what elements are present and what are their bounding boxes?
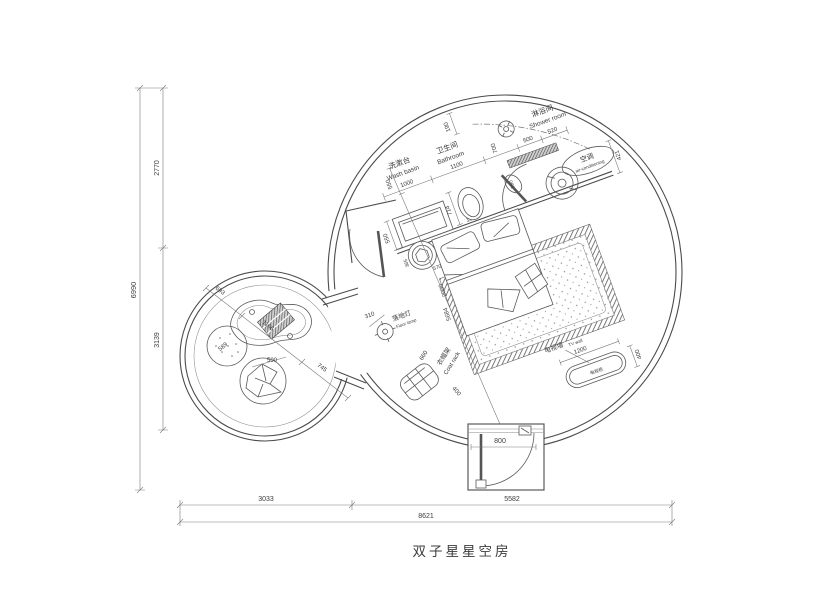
small-room-shell — [180, 271, 350, 441]
dim-entry-door: 800 — [494, 438, 506, 445]
entrance: 800 — [468, 424, 544, 490]
dim-overall-height: 6990 — [129, 282, 138, 299]
dim-overall-width: 8621 — [418, 513, 434, 520]
left-dimensions: 6990 2770 3139 — [129, 85, 168, 493]
drawing-title: 双子星星空房 — [413, 544, 512, 559]
floor-plan-drawing: 1800 2000 365 570 550 714 590 — [0, 0, 837, 592]
dim-height-top: 2770 — [154, 160, 161, 176]
dim-beanbag: 500 — [267, 358, 278, 364]
dim-width-right: 5582 — [504, 496, 520, 503]
floor-plan-canvas: 1800 2000 365 570 550 714 590 — [0, 0, 837, 592]
dim-width-left: 3033 — [258, 496, 274, 503]
dim-height-mid: 3139 — [154, 332, 161, 348]
bottom-dimensions: 3033 5582 8621 — [177, 496, 675, 526]
